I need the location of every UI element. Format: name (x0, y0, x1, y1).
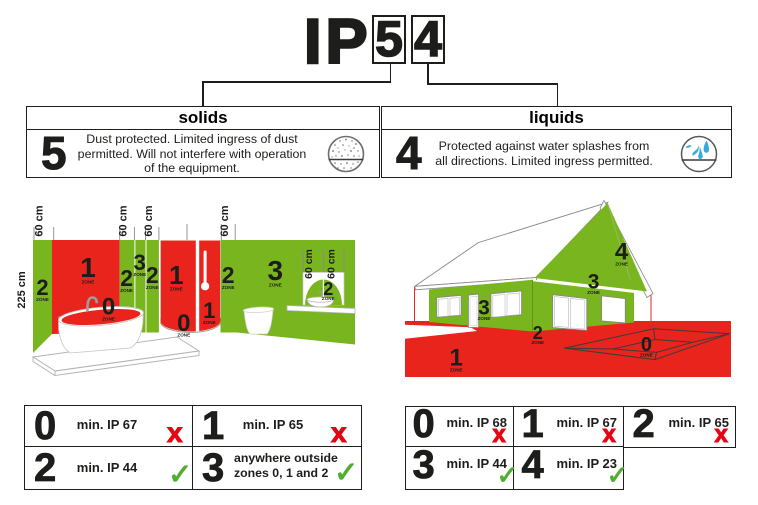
svg-text:60 cm: 60 cm (34, 205, 46, 236)
svg-text:ZONE: ZONE (146, 285, 159, 290)
svg-text:ZONE: ZONE (82, 280, 95, 285)
svg-text:60 cm: 60 cm (303, 249, 315, 279)
svg-text:1: 1 (80, 252, 96, 283)
svg-text:ZONE: ZONE (120, 288, 133, 293)
svg-text:ZONE: ZONE (133, 272, 146, 277)
svg-text:ZONE: ZONE (322, 296, 335, 301)
svg-text:ZONE: ZONE (36, 297, 49, 302)
svg-text:ZONE: ZONE (615, 262, 628, 267)
svg-text:ZONE: ZONE (170, 287, 183, 292)
svg-text:ZONE: ZONE (531, 340, 544, 345)
svg-text:60 cm: 60 cm (326, 249, 338, 279)
svg-text:225 cm: 225 cm (16, 271, 28, 309)
svg-text:ZONE: ZONE (203, 320, 216, 325)
svg-text:60 cm: 60 cm (143, 205, 155, 236)
svg-text:ZONE: ZONE (269, 283, 282, 288)
svg-text:ZONE: ZONE (102, 317, 115, 322)
svg-text:ZONE: ZONE (450, 368, 463, 373)
svg-text:1: 1 (169, 260, 183, 290)
svg-text:60 cm: 60 cm (118, 205, 130, 236)
svg-text:ZONE: ZONE (587, 290, 600, 295)
svg-text:60 cm: 60 cm (219, 205, 231, 236)
svg-text:ZONE: ZONE (478, 316, 491, 321)
svg-text:3: 3 (268, 255, 284, 286)
svg-text:ZONE: ZONE (222, 285, 235, 290)
svg-text:ZONE: ZONE (177, 333, 190, 338)
svg-text:ZONE: ZONE (640, 353, 653, 358)
